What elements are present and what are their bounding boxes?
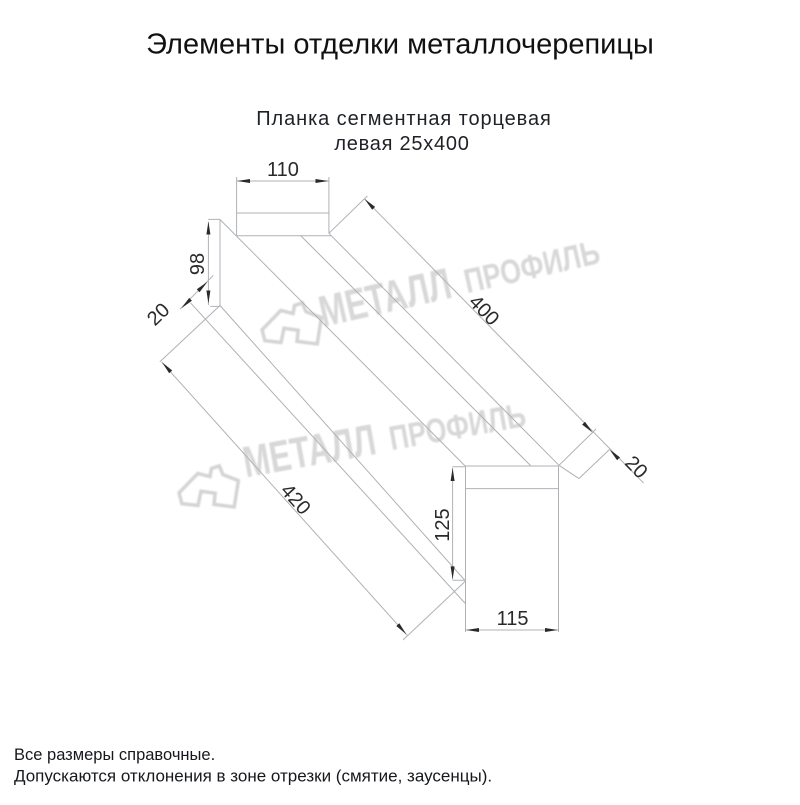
svg-text:Планка сегментная торцевая: Планка сегментная торцевая [256,108,551,130]
svg-text:125: 125 [432,508,454,541]
svg-text:левая 25х400: левая 25х400 [334,133,469,155]
svg-text:110: 110 [267,159,299,181]
svg-text:Элементы отделки металлочерепи: Элементы отделки металлочерепицы [146,29,654,61]
svg-text:Допускаются отклонения в зоне: Допускаются отклонения в зоне отрезки (с… [14,767,492,786]
svg-text:115: 115 [497,608,529,630]
svg-text:Все размеры справочные.: Все размеры справочные. [14,746,215,764]
svg-text:98: 98 [187,253,209,275]
